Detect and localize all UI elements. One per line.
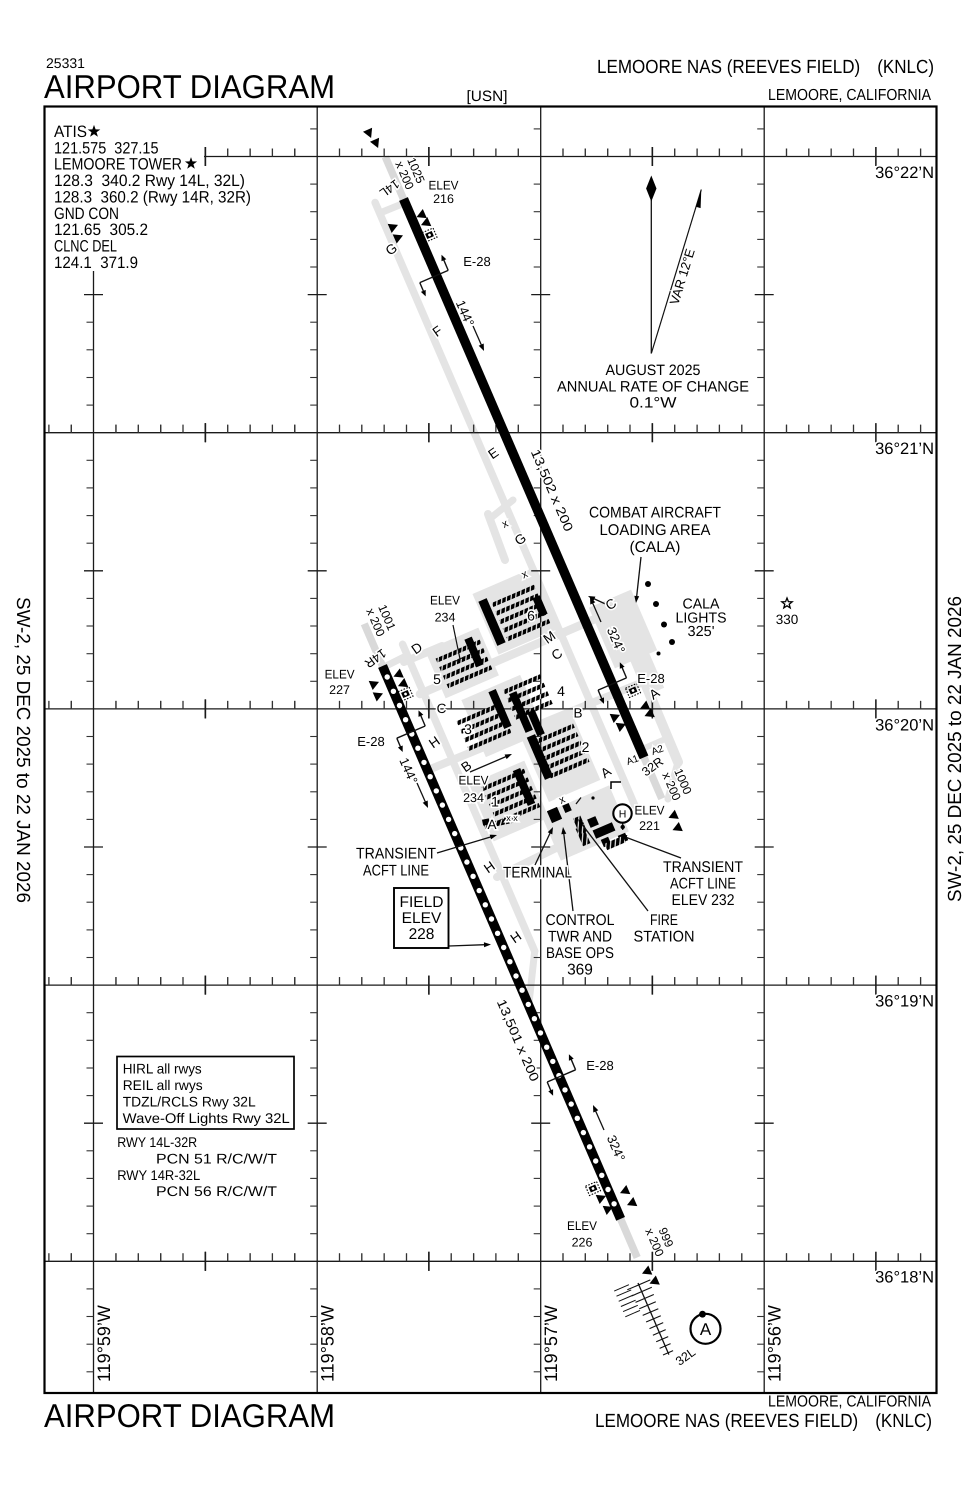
svg-text:TWR AND: TWR AND	[548, 929, 612, 946]
svg-text:369: 369	[567, 962, 593, 979]
svg-text:ELEV: ELEV	[429, 179, 460, 193]
svg-text:128.3 340.2 Rwy 14L, 32L): 128.3 340.2 Rwy 14L, 32L)	[54, 172, 245, 190]
svg-text:FIRE: FIRE	[650, 912, 678, 929]
svg-text:121.575 327.15: 121.575 327.15	[54, 139, 159, 157]
svg-text:COMBAT AIRCRAFT: COMBAT AIRCRAFT	[589, 505, 721, 522]
svg-text:A: A	[487, 817, 496, 832]
svg-text:228: 228	[409, 926, 435, 943]
svg-text:216: 216	[433, 192, 454, 206]
svg-text:ANNUAL RATE OF CHANGE: ANNUAL RATE OF CHANGE	[557, 378, 749, 395]
svg-text:1: 1	[491, 794, 499, 810]
svg-text:ELEV: ELEV	[459, 774, 490, 788]
svg-text:B: B	[573, 706, 582, 721]
svg-text:0.1°W: 0.1°W	[630, 395, 678, 412]
svg-text:AIRPORT DIAGRAM: AIRPORT DIAGRAM	[44, 68, 335, 105]
svg-text:C: C	[437, 701, 447, 716]
svg-text:RWY 14R-32L: RWY 14R-32L	[117, 1167, 200, 1183]
svg-text:ELEV: ELEV	[402, 910, 442, 927]
svg-text:6: 6	[527, 608, 535, 624]
svg-text:E-28: E-28	[637, 671, 664, 686]
svg-text:REIL all rwys: REIL all rwys	[123, 1077, 203, 1093]
svg-text:PCN 56 R/C/W/T: PCN 56 R/C/W/T	[156, 1183, 277, 1199]
svg-text:TRANSIENT: TRANSIENT	[356, 846, 436, 863]
svg-text:E-28: E-28	[586, 1058, 613, 1073]
svg-text:ACFT LINE: ACFT LINE	[363, 863, 429, 880]
svg-text:TERMINAL: TERMINAL	[503, 865, 572, 882]
svg-text:119°56’W: 119°56’W	[765, 1305, 785, 1382]
svg-text:CLNC DEL: CLNC DEL	[54, 238, 117, 256]
svg-text:ELEV: ELEV	[430, 594, 461, 608]
svg-text:234: 234	[435, 611, 456, 625]
svg-text:LEMOORE, CALIFORNIA: LEMOORE, CALIFORNIA	[768, 1394, 931, 1411]
svg-text:226: 226	[572, 1236, 593, 1250]
svg-text:221: 221	[639, 819, 660, 833]
svg-text:SW-2, 25 DEC 2025 to 22 JAN: SW-2, 25 DEC 2025 to 22 JAN 2026	[12, 597, 33, 903]
svg-text:124.1 371.9: 124.1 371.9	[54, 254, 138, 272]
svg-text:ELEV: ELEV	[635, 804, 666, 818]
svg-text:ATIS: ATIS	[54, 123, 87, 141]
svg-text:ACFT LINE: ACFT LINE	[670, 876, 736, 893]
svg-text:119°58’W: 119°58’W	[318, 1305, 338, 1382]
svg-text:RWY 14L-32R: RWY 14L-32R	[117, 1134, 197, 1150]
svg-text:227: 227	[329, 683, 350, 697]
svg-text:325': 325'	[688, 624, 715, 640]
svg-text:4: 4	[557, 683, 565, 699]
svg-text:x x: x x	[506, 813, 518, 823]
svg-text:36°19’N: 36°19’N	[875, 993, 934, 1011]
svg-text:AIRPORT DIAGRAM: AIRPORT DIAGRAM	[44, 1397, 335, 1434]
svg-text:(CALA): (CALA)	[630, 539, 681, 556]
svg-text:SW-2, 25 DEC 2025 to 22 JAN: SW-2, 25 DEC 2025 to 22 JAN 2026	[945, 596, 966, 902]
svg-text:LEMOORE TOWER: LEMOORE TOWER	[54, 156, 182, 174]
svg-text:TRANSIENT: TRANSIENT	[663, 859, 743, 876]
svg-text:36°22’N: 36°22’N	[875, 164, 934, 182]
svg-text:330: 330	[776, 612, 799, 627]
svg-text:STATION: STATION	[634, 929, 695, 946]
svg-text:AUGUST 2025: AUGUST 2025	[606, 362, 701, 379]
svg-text:[USN]: [USN]	[467, 88, 508, 105]
svg-text:LEMOORE NAS (REEVES FIELD) (K: LEMOORE NAS (REEVES FIELD) (KNLC)	[595, 1411, 932, 1432]
svg-text:119°59’W: 119°59’W	[94, 1305, 114, 1382]
svg-text:ELEV: ELEV	[325, 668, 356, 682]
svg-text:HIRL all rwys: HIRL all rwys	[123, 1061, 202, 1077]
svg-text:2: 2	[582, 739, 590, 755]
svg-text:A: A	[700, 1320, 712, 1339]
svg-text:234: 234	[463, 791, 484, 805]
svg-text:ELEV: ELEV	[567, 1219, 598, 1233]
svg-text:119°57’W: 119°57’W	[541, 1305, 561, 1382]
svg-text:LEMOORE, CALIFORNIA: LEMOORE, CALIFORNIA	[768, 87, 931, 104]
svg-text:CONTROL: CONTROL	[546, 912, 615, 929]
svg-text:BASE OPS: BASE OPS	[546, 945, 614, 962]
svg-text:TDZL/RCLS Rwy 32L: TDZL/RCLS Rwy 32L	[123, 1094, 256, 1110]
svg-text:36°21’N: 36°21’N	[875, 440, 934, 458]
svg-text:ELEV 232: ELEV 232	[672, 892, 735, 909]
svg-text:PCN 51 R/C/W/T: PCN 51 R/C/W/T	[156, 1151, 277, 1167]
svg-text:5: 5	[433, 671, 441, 687]
svg-text:FIELD: FIELD	[400, 894, 444, 911]
svg-text:LEMOORE NAS (REEVES FIELD) (K: LEMOORE NAS (REEVES FIELD) (KNLC)	[597, 57, 934, 78]
svg-text:E-28: E-28	[357, 734, 384, 749]
svg-text:GND CON: GND CON	[54, 205, 119, 223]
svg-text:E-28: E-28	[463, 254, 490, 269]
svg-text:H: H	[619, 809, 627, 821]
svg-text:121.65 305.2: 121.65 305.2	[54, 221, 148, 239]
svg-text:36°20’N: 36°20’N	[875, 717, 934, 735]
svg-text:Wave-Off Lights Rwy 32L: Wave-Off Lights Rwy 32L	[123, 1110, 290, 1126]
svg-text:36°18’N: 36°18’N	[875, 1269, 934, 1287]
svg-text:3: 3	[464, 721, 472, 737]
svg-text:128.3 360.2 (Rwy 14R, 32R): 128.3 360.2 (Rwy 14R, 32R)	[54, 188, 251, 206]
svg-text:LOADING AREA: LOADING AREA	[600, 522, 712, 539]
